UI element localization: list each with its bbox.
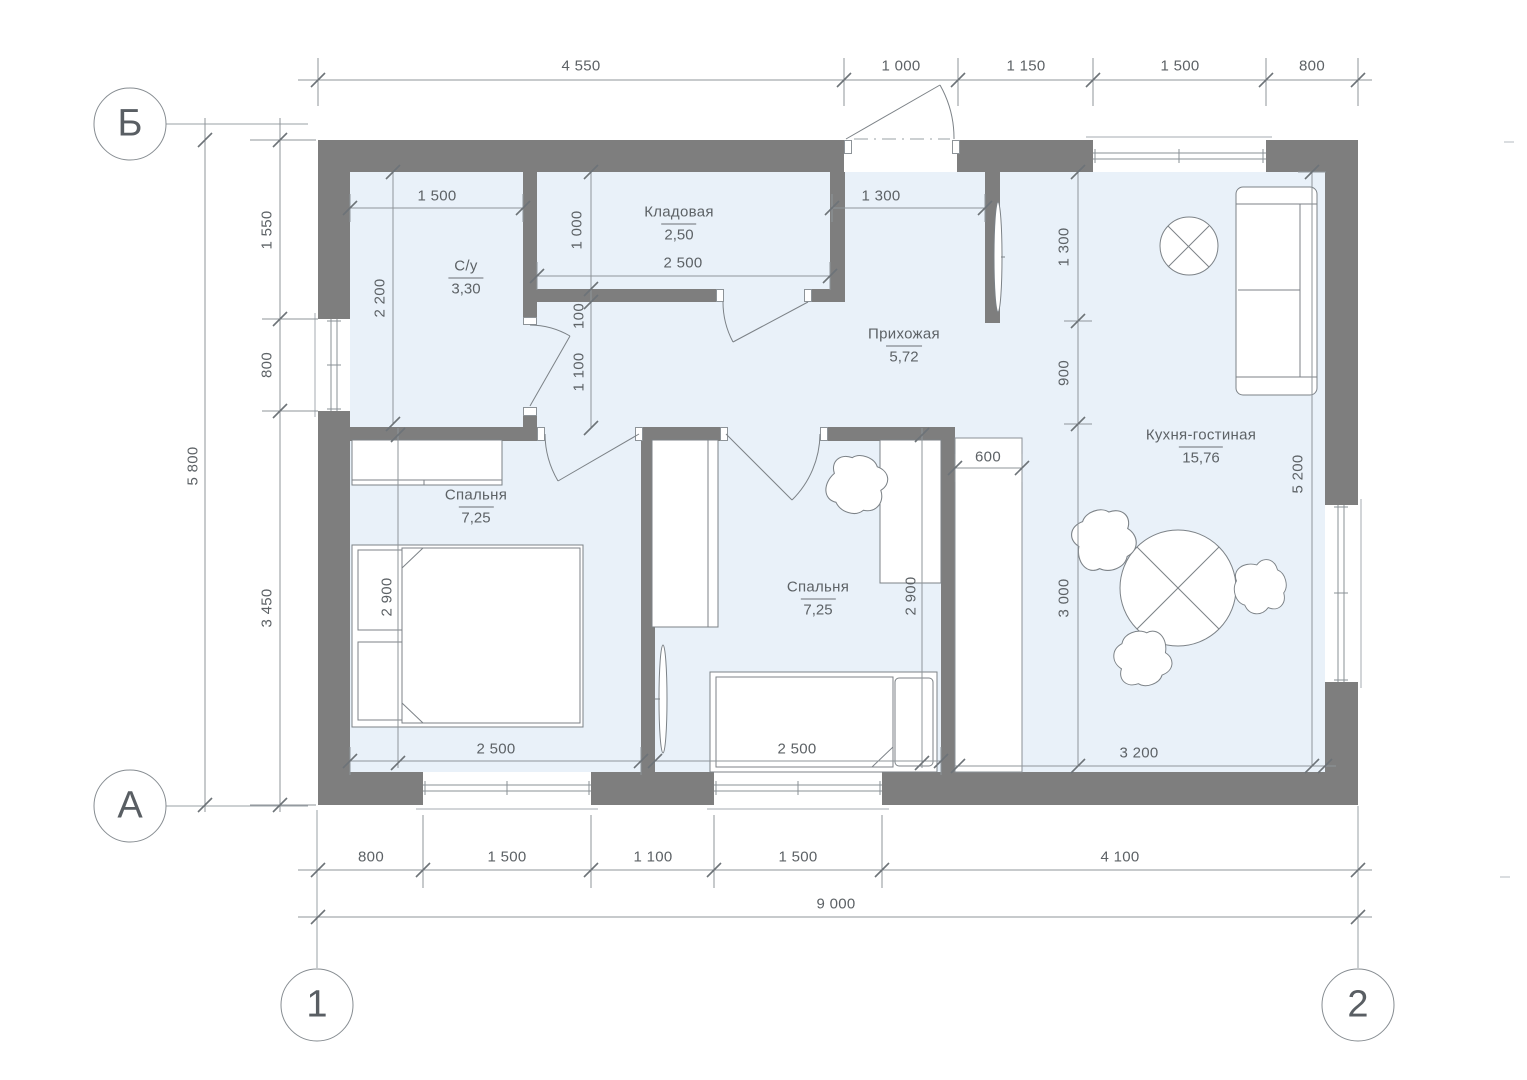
- window-bottom-1: [416, 781, 598, 809]
- window-top: [1086, 137, 1272, 163]
- dim-label: 2 900: [904, 576, 919, 615]
- dim-ticks: [198, 73, 1365, 924]
- built-in-closet: [955, 438, 1022, 772]
- dim-label: 1 500: [487, 850, 526, 865]
- dim-label: 2 900: [380, 577, 395, 616]
- room-area: 5,72: [886, 346, 921, 366]
- room-area: 7,25: [458, 507, 493, 527]
- room-label-hallway: Прихожая5,72: [868, 326, 940, 367]
- bedroom1-door: [545, 434, 639, 481]
- dim-label: 2 200: [373, 278, 388, 317]
- room-name: Спальня: [445, 487, 507, 504]
- sofa: [1236, 187, 1317, 395]
- dim-label: 1 300: [861, 189, 900, 204]
- entrance-door: [846, 85, 954, 139]
- room-label-storage: Кладовая2,50: [644, 204, 714, 245]
- axis-label-b: Б: [118, 103, 143, 146]
- bathroom-door: [530, 325, 570, 406]
- wardrobe-bedroom2-left: [652, 440, 718, 627]
- room-area: 3,30: [448, 278, 483, 298]
- dining-table: [1120, 530, 1236, 646]
- room-name: С/у: [448, 258, 483, 275]
- room-label-bedroom2: Спальня7,25: [787, 579, 849, 620]
- dim-label: 800: [1299, 59, 1325, 74]
- dim-label: 9 000: [816, 897, 855, 912]
- tv-bedroom2-icon: [655, 645, 667, 753]
- dim-label: 1 500: [778, 850, 817, 865]
- window-left: [315, 313, 341, 417]
- dim-label: 3 450: [260, 588, 275, 627]
- room-name: Кладовая: [644, 204, 714, 221]
- dim-label: 4 550: [561, 59, 600, 74]
- dim-label: 3 200: [1119, 746, 1158, 761]
- dim-label: 900: [1057, 360, 1072, 386]
- axis-label-a: А: [117, 785, 142, 828]
- bedroom2-door: [726, 434, 820, 500]
- room-area: 2,50: [661, 224, 696, 244]
- crop-marks: [1500, 142, 1514, 877]
- dim-label: 100: [572, 303, 587, 329]
- floor-plan-canvas: Б А 1 2 С/у3,30 Кладовая2,50 Прихожая5,7…: [0, 0, 1527, 1080]
- dresser-bedroom1: [352, 440, 502, 485]
- dim-label: 800: [358, 850, 384, 865]
- dim-label: 2 500: [663, 256, 702, 271]
- dim-label: 600: [975, 450, 1001, 465]
- chair-icon: [1228, 556, 1292, 619]
- room-label-kitchen-living: Кухня-гостиная15,76: [1146, 427, 1256, 468]
- window-right: [1334, 499, 1361, 688]
- axis-label-1: 1: [306, 984, 327, 1027]
- side-table: [1160, 217, 1218, 275]
- room-label-bathroom: С/у3,30: [448, 258, 483, 299]
- dim-label: 2 500: [476, 742, 515, 757]
- tv-kitchen-icon: [994, 202, 1005, 312]
- dim-label: 1 500: [417, 189, 456, 204]
- room-name: Кухня-гостиная: [1146, 427, 1256, 444]
- dim-label: 1 000: [570, 210, 585, 249]
- dim-label: 1 550: [260, 210, 275, 249]
- dim-label: 3 000: [1057, 578, 1072, 617]
- single-bed: [710, 672, 937, 772]
- room-label-bedroom1: Спальня7,25: [445, 487, 507, 528]
- dim-label: 800: [260, 352, 275, 378]
- room-area: 7,25: [800, 599, 835, 619]
- dim-label: 2 500: [777, 742, 816, 757]
- dim-label: 1 100: [572, 352, 587, 391]
- window-bottom-2: [707, 781, 889, 809]
- dim-label: 1 100: [633, 850, 672, 865]
- room-name: Прихожая: [868, 326, 940, 343]
- double-bed: [352, 545, 583, 727]
- storage-door: [723, 302, 808, 342]
- axis-label-2: 2: [1347, 984, 1368, 1027]
- dim-label: 4 100: [1100, 850, 1139, 865]
- room-area: 15,76: [1179, 447, 1223, 467]
- dim-label: 1 150: [1006, 59, 1045, 74]
- linework-overlay: [0, 0, 1527, 1080]
- dim-label: 5 200: [1291, 454, 1306, 493]
- dim-label: 5 800: [186, 446, 201, 485]
- dim-label: 1 300: [1057, 227, 1072, 266]
- wardrobe-bedroom2-right: [880, 440, 941, 583]
- dim-lines-exterior: [205, 58, 1372, 917]
- room-name: Спальня: [787, 579, 849, 596]
- dim-label: 1 000: [881, 59, 920, 74]
- dim-label: 1 500: [1160, 59, 1199, 74]
